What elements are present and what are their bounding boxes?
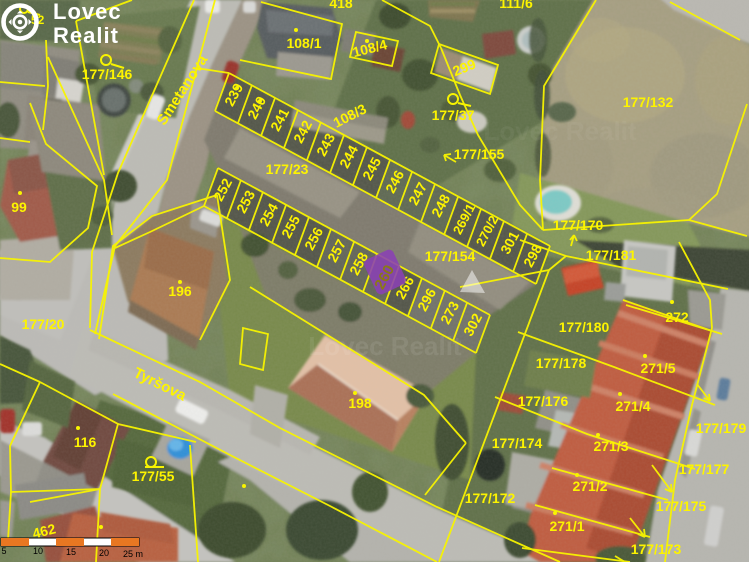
svg-text:Lovec Realit: Lovec Realit [483,116,637,146]
svg-text:177/55: 177/55 [132,468,175,484]
svg-text:177/155: 177/155 [454,146,505,162]
svg-text:271/4: 271/4 [615,398,650,414]
svg-text:25 m: 25 m [123,549,143,559]
svg-text:177/178: 177/178 [536,355,587,371]
svg-text:271/3: 271/3 [593,438,628,454]
svg-text:177/154: 177/154 [425,248,476,264]
svg-text:177/181: 177/181 [586,247,637,263]
svg-text:177/180: 177/180 [559,319,610,335]
svg-text:271/1: 271/1 [549,518,584,534]
svg-text:177/146: 177/146 [82,66,133,82]
svg-text:271/2: 271/2 [572,478,607,494]
svg-text:196: 196 [168,283,192,299]
svg-text:Lovec Realit: Lovec Realit [308,331,462,361]
svg-text:177/172: 177/172 [465,490,516,506]
svg-text:108/1: 108/1 [286,35,321,51]
svg-text:177/173: 177/173 [631,541,682,557]
svg-text:177/179: 177/179 [696,420,747,436]
svg-text:99: 99 [11,199,27,215]
svg-text:10: 10 [33,546,43,556]
svg-text:20: 20 [99,548,109,558]
svg-text:Realit: Realit [53,23,119,48]
svg-text:418: 418 [329,0,353,11]
svg-text:272: 272 [665,309,689,325]
svg-text:271/5: 271/5 [640,360,675,376]
svg-text:177/174: 177/174 [492,435,543,451]
svg-text:5: 5 [1,546,6,556]
svg-text:177/170: 177/170 [553,217,604,233]
svg-text:177/20: 177/20 [22,316,65,332]
svg-text:177/132: 177/132 [623,94,674,110]
svg-text:177/176: 177/176 [518,393,569,409]
svg-text:116: 116 [74,434,97,450]
svg-text:Lovec: Lovec [53,0,122,24]
svg-text:177/23: 177/23 [266,161,309,177]
svg-text:177/37: 177/37 [432,107,475,123]
svg-text:198: 198 [348,395,372,411]
svg-text:15: 15 [66,547,76,557]
svg-text:111/6: 111/6 [499,0,533,11]
svg-text:177/175: 177/175 [656,498,707,514]
svg-text:177/177: 177/177 [679,461,730,477]
